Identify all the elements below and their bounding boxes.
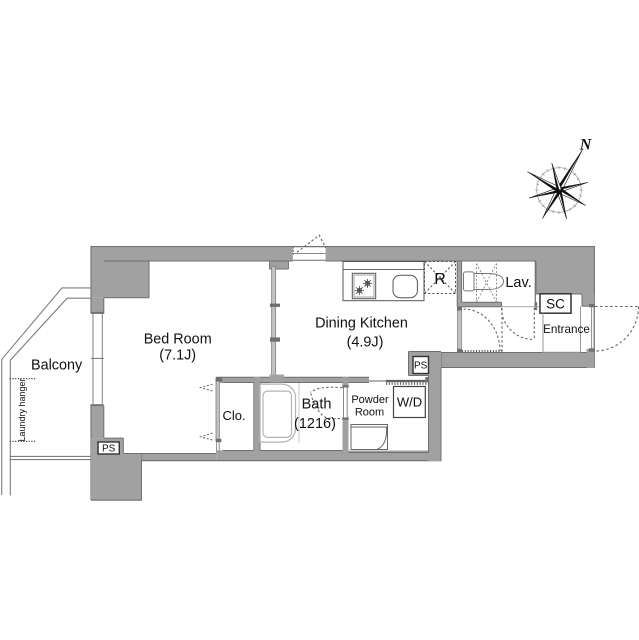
svg-text:(1216): (1216) <box>294 416 336 432</box>
svg-text:Powder: Powder <box>351 394 389 406</box>
svg-text:PS: PS <box>102 444 116 455</box>
svg-text:Bed Room: Bed Room <box>144 331 212 347</box>
svg-text:Dining Kitchen: Dining Kitchen <box>315 315 408 331</box>
svg-text:PS: PS <box>414 361 428 372</box>
svg-text:Balcony: Balcony <box>31 357 83 373</box>
svg-text:R: R <box>434 271 446 288</box>
svg-text:(7.1J): (7.1J) <box>159 347 196 363</box>
svg-text:W/D: W/D <box>397 395 422 410</box>
svg-text:Laundry hanger: Laundry hanger <box>17 378 27 441</box>
svg-text:Lav.: Lav. <box>505 275 531 291</box>
svg-text:SC: SC <box>546 296 565 311</box>
svg-text:(4.9J): (4.9J) <box>347 334 384 350</box>
svg-text:Bath: Bath <box>302 397 332 413</box>
svg-text:Room: Room <box>355 406 384 418</box>
svg-text:Entrance: Entrance <box>543 323 590 336</box>
svg-text:Clo.: Clo. <box>222 408 245 423</box>
svg-text:N: N <box>579 137 593 154</box>
